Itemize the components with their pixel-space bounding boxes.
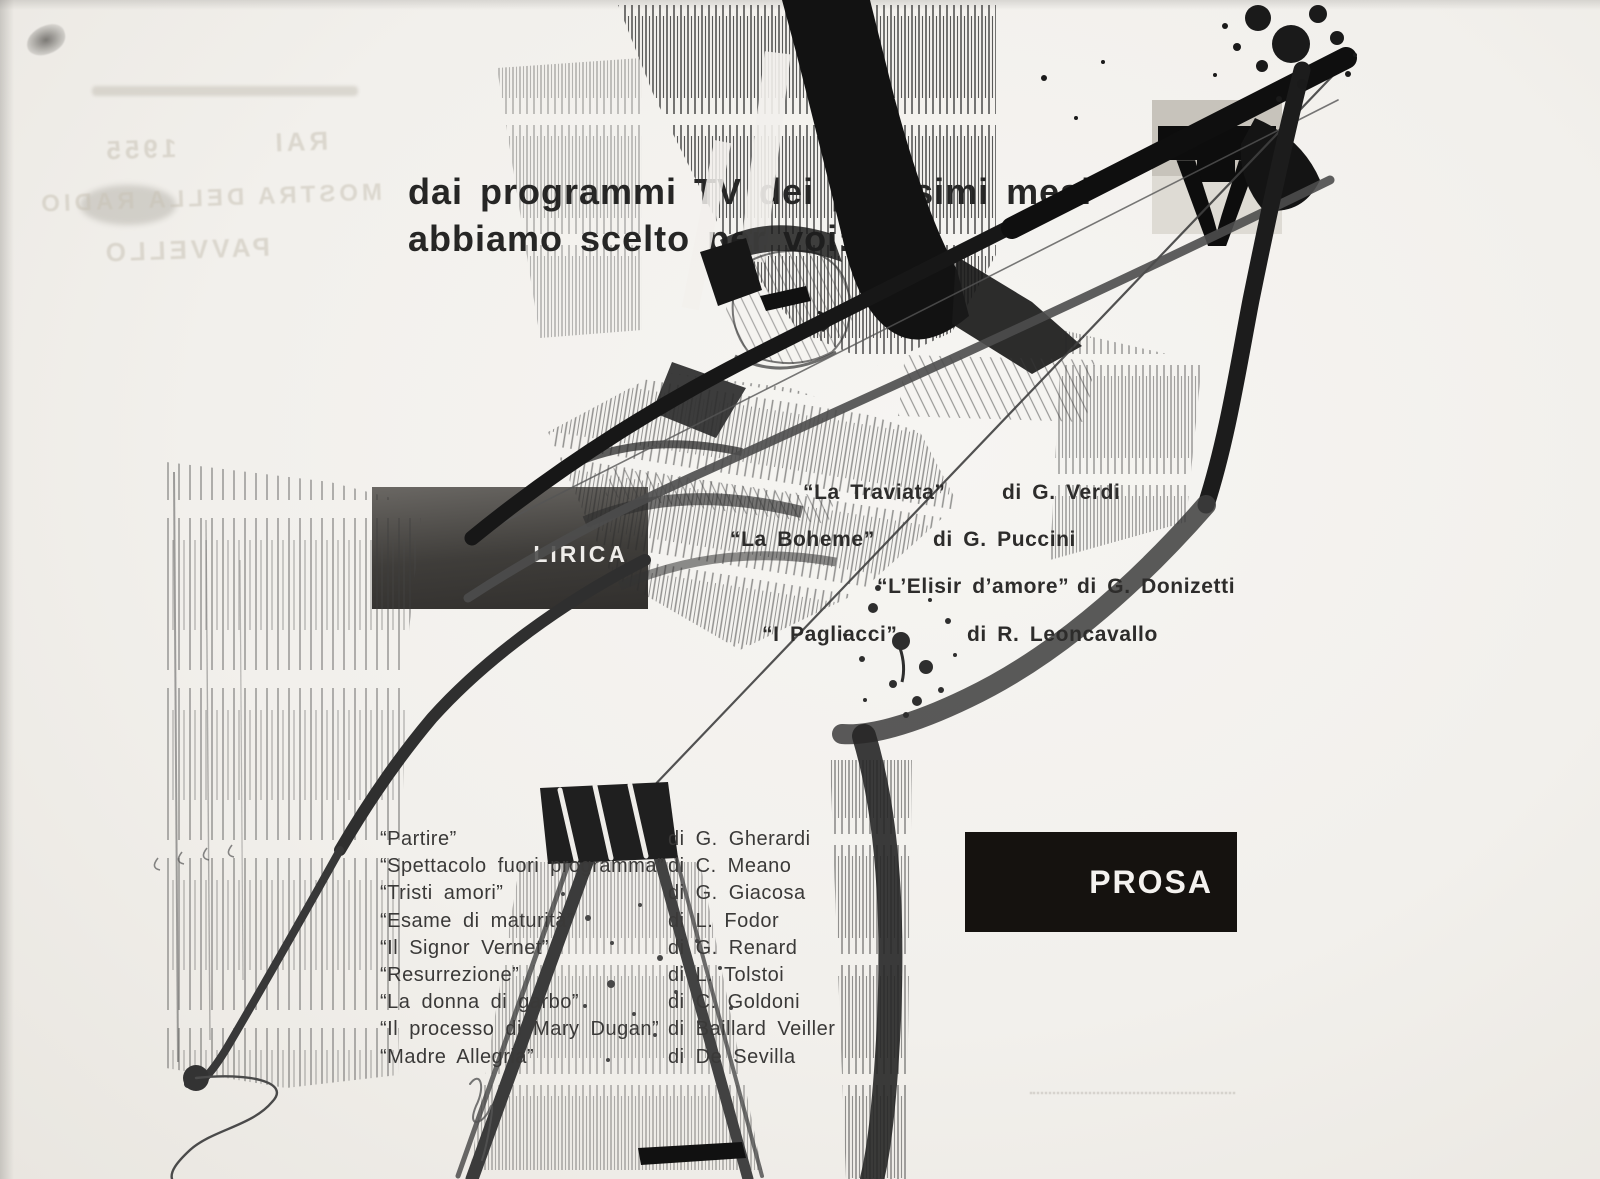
play-author: di De Sevilla [668,1044,796,1071]
play-author: di G. Gherardi [668,826,811,853]
lirica-row: “L’Elisir d’amore” di G. Donizetti [877,575,1069,599]
play-author: di L. Tolstoi [668,962,784,989]
prosa-label: PROSA [1089,864,1213,901]
play-title: “Partire” [380,828,457,850]
play-title: “Spettacolo fuori programma” [380,855,664,877]
lirica-row: “I Pagliacci” di R. Leoncavallo [762,623,898,647]
prosa-section-label-box: PROSA [965,832,1237,932]
play-title: “Tristi amori” [380,882,503,904]
opera-title: “La Boheme” [730,528,875,551]
prosa-row: “Spettacolo fuori programma” di C. Meano [380,853,664,880]
play-author: di C. Goldoni [668,989,800,1016]
lirica-row: “La Traviata” di G. Verdi [803,481,946,505]
opera-title: “La Traviata” [803,481,946,504]
prosa-row: “Resurrezione” di L. Tolstoi [380,962,664,989]
prosa-row: “Esame di maturità” di L. Fodor [380,908,664,935]
prosa-row: “Tristi amori” di G. Giacosa [380,880,664,907]
play-author: di L. Fodor [668,908,779,935]
play-title: “Resurrezione” [380,964,519,986]
prosa-row: “Madre Allegria” di De Sevilla [380,1044,664,1071]
opera-title: “I Pagliacci” [762,623,898,646]
poster-page: RAI 1955 MOSTRA DELLA RADIO PAVVELLO dai… [0,0,1600,1179]
prosa-row: “Il Signor Vernet” di G. Renard [380,935,664,962]
play-title: “Esame di maturità” [380,910,574,932]
play-title: “La donna di garbo” [380,991,579,1013]
prosa-row: “La donna di garbo” di C. Goldoni [380,989,664,1016]
play-author: di G. Renard [668,935,797,962]
prosa-row: “Partire” di G. Gherardi [380,826,664,853]
prosa-row: “Il processo di Mary Dugan” di Baillard … [380,1016,664,1043]
opera-author: di G. Donizetti [1077,575,1235,599]
opera-author: di G. Puccini [933,528,1076,552]
opera-author: di G. Verdi [1002,481,1120,505]
play-title: “Il processo di Mary Dugan” [380,1018,659,1040]
play-title: “Madre Allegria” [380,1046,534,1068]
opera-title: “L’Elisir d’amore” [877,575,1069,598]
prosa-list: “Partire” di G. Gherardi “Spettacolo fuo… [380,826,664,1071]
opera-author: di R. Leoncavallo [967,623,1158,647]
lirica-row: “La Boheme” di G. Puccini [730,528,875,552]
play-author: di Baillard Veiller [668,1016,835,1043]
play-author: di G. Giacosa [668,880,806,907]
play-title: “Il Signor Vernet” [380,937,549,959]
play-author: di C. Meano [668,853,791,880]
